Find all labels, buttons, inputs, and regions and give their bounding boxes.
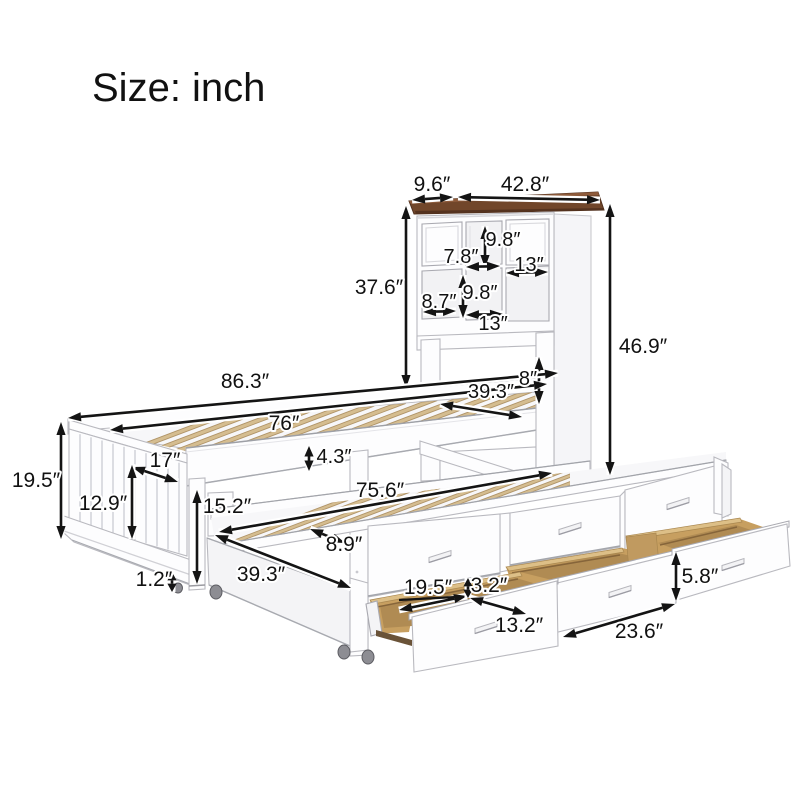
svg-text:37.6″: 37.6″ — [355, 276, 404, 299]
svg-text:8.7″: 8.7″ — [422, 291, 457, 313]
svg-text:5.8″: 5.8″ — [682, 565, 719, 588]
svg-text:39.3″: 39.3″ — [237, 563, 286, 586]
svg-text:46.9″: 46.9″ — [619, 335, 668, 358]
svg-text:15.2″: 15.2″ — [203, 495, 252, 518]
svg-text:9.8″: 9.8″ — [463, 282, 498, 304]
svg-text:19.5″: 19.5″ — [404, 576, 453, 599]
svg-text:7.8″: 7.8″ — [444, 246, 479, 268]
svg-text:17″: 17″ — [150, 449, 181, 472]
svg-text:3.2″: 3.2″ — [471, 574, 508, 597]
svg-text:13″: 13″ — [514, 254, 543, 276]
svg-text:12.9″: 12.9″ — [79, 492, 128, 515]
svg-text:19.5″: 19.5″ — [12, 469, 61, 492]
svg-text:13.2″: 13.2″ — [495, 614, 544, 637]
svg-text:23.6″: 23.6″ — [615, 620, 664, 643]
svg-text:75.6″: 75.6″ — [356, 479, 405, 502]
svg-text:4.3″: 4.3″ — [317, 446, 352, 468]
svg-text:1.2″: 1.2″ — [136, 568, 173, 591]
svg-text:8″: 8″ — [519, 368, 537, 390]
svg-text:76″: 76″ — [269, 412, 300, 435]
svg-text:86.3″: 86.3″ — [221, 370, 270, 393]
svg-text:9.8″: 9.8″ — [486, 229, 521, 251]
svg-text:39.3″: 39.3″ — [468, 381, 514, 403]
svg-text:8.9″: 8.9″ — [326, 533, 363, 556]
svg-text:13″: 13″ — [478, 313, 507, 335]
svg-text:42.8″: 42.8″ — [501, 173, 550, 196]
svg-text:Size: inch: Size: inch — [92, 66, 265, 110]
svg-text:9.6″: 9.6″ — [414, 173, 451, 196]
